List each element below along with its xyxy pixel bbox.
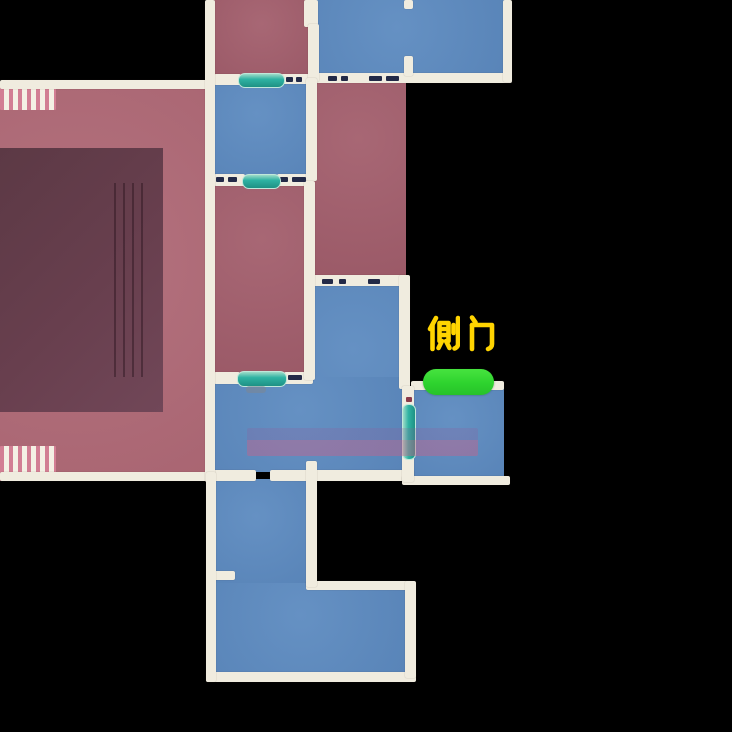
door-marker-teal-2: [242, 174, 281, 189]
doorframe-dash: [368, 279, 380, 284]
stage-pinstripes: [114, 183, 148, 377]
doorframe-dash: [296, 77, 302, 82]
doorframe-dash: [322, 279, 333, 284]
wall-main-left: [205, 0, 215, 482]
doorframe-dash: [369, 76, 382, 81]
doorframe-dash: [228, 177, 237, 182]
wall-topblue-stub: [404, 56, 413, 76]
wall-topblue-right: [503, 0, 512, 82]
minimap: 侧门: [0, 0, 732, 732]
wall-bigblue-bottom-right: [270, 470, 414, 481]
doorframe-dash: [216, 177, 224, 182]
wall-topred-topblue-divider: [308, 24, 319, 82]
wall-middleblue-right: [399, 275, 410, 389]
door-marker-teal-3: [237, 371, 287, 387]
bottom-room-upper-part: [214, 479, 308, 585]
lower-middle-blue-hall: [214, 377, 405, 472]
wall-bottomroom-bottom: [206, 672, 416, 682]
door-marker-shadow: [246, 386, 266, 393]
upper-middle-blue-room: [214, 78, 310, 180]
wall-door1-left: [214, 74, 241, 85]
doorframe-dash: [286, 77, 293, 82]
doorframe-dash: [292, 177, 306, 182]
side-door-label: 侧门: [427, 315, 497, 353]
floor-pink-band: [247, 428, 478, 456]
door-marker-teal-1: [238, 73, 285, 88]
stairs-hatch-bottom: [0, 446, 56, 473]
wall-bottomext-top: [306, 581, 408, 590]
wall-stub-bottomroom: [214, 571, 235, 580]
corridor-middle-red: [214, 180, 309, 378]
wall-topblue-notch: [404, 0, 413, 9]
wall-top-stub: [304, 0, 318, 27]
wall-bottomext-right: [405, 581, 416, 678]
doorframe-dash: [328, 76, 337, 81]
doorframe-dash: [280, 177, 288, 182]
middle-red-room: [311, 78, 406, 280]
doorframe-dash: [288, 375, 302, 380]
doorframe-dash-red: [406, 397, 412, 402]
wall-bottomroom-left: [206, 472, 216, 682]
wall-bottomroom-inner-right: [306, 461, 317, 587]
doorframe-dash: [341, 76, 348, 81]
bottom-room-lower-part: [214, 583, 407, 674]
corridor-top-red: [214, 0, 309, 80]
wall-hall-bottom: [0, 472, 214, 481]
doorframe-dash: [386, 76, 399, 81]
wall-sideroom-bottom: [402, 476, 510, 485]
wall-hall-top: [0, 80, 214, 89]
glyph-ce: [427, 315, 460, 353]
glyph-men: [467, 315, 497, 353]
wall-corridor-right-lower: [304, 181, 315, 380]
wall-corridor-right-upper: [306, 78, 317, 181]
side-door-marker[interactable]: [423, 369, 494, 395]
doorframe-dash: [339, 279, 346, 284]
